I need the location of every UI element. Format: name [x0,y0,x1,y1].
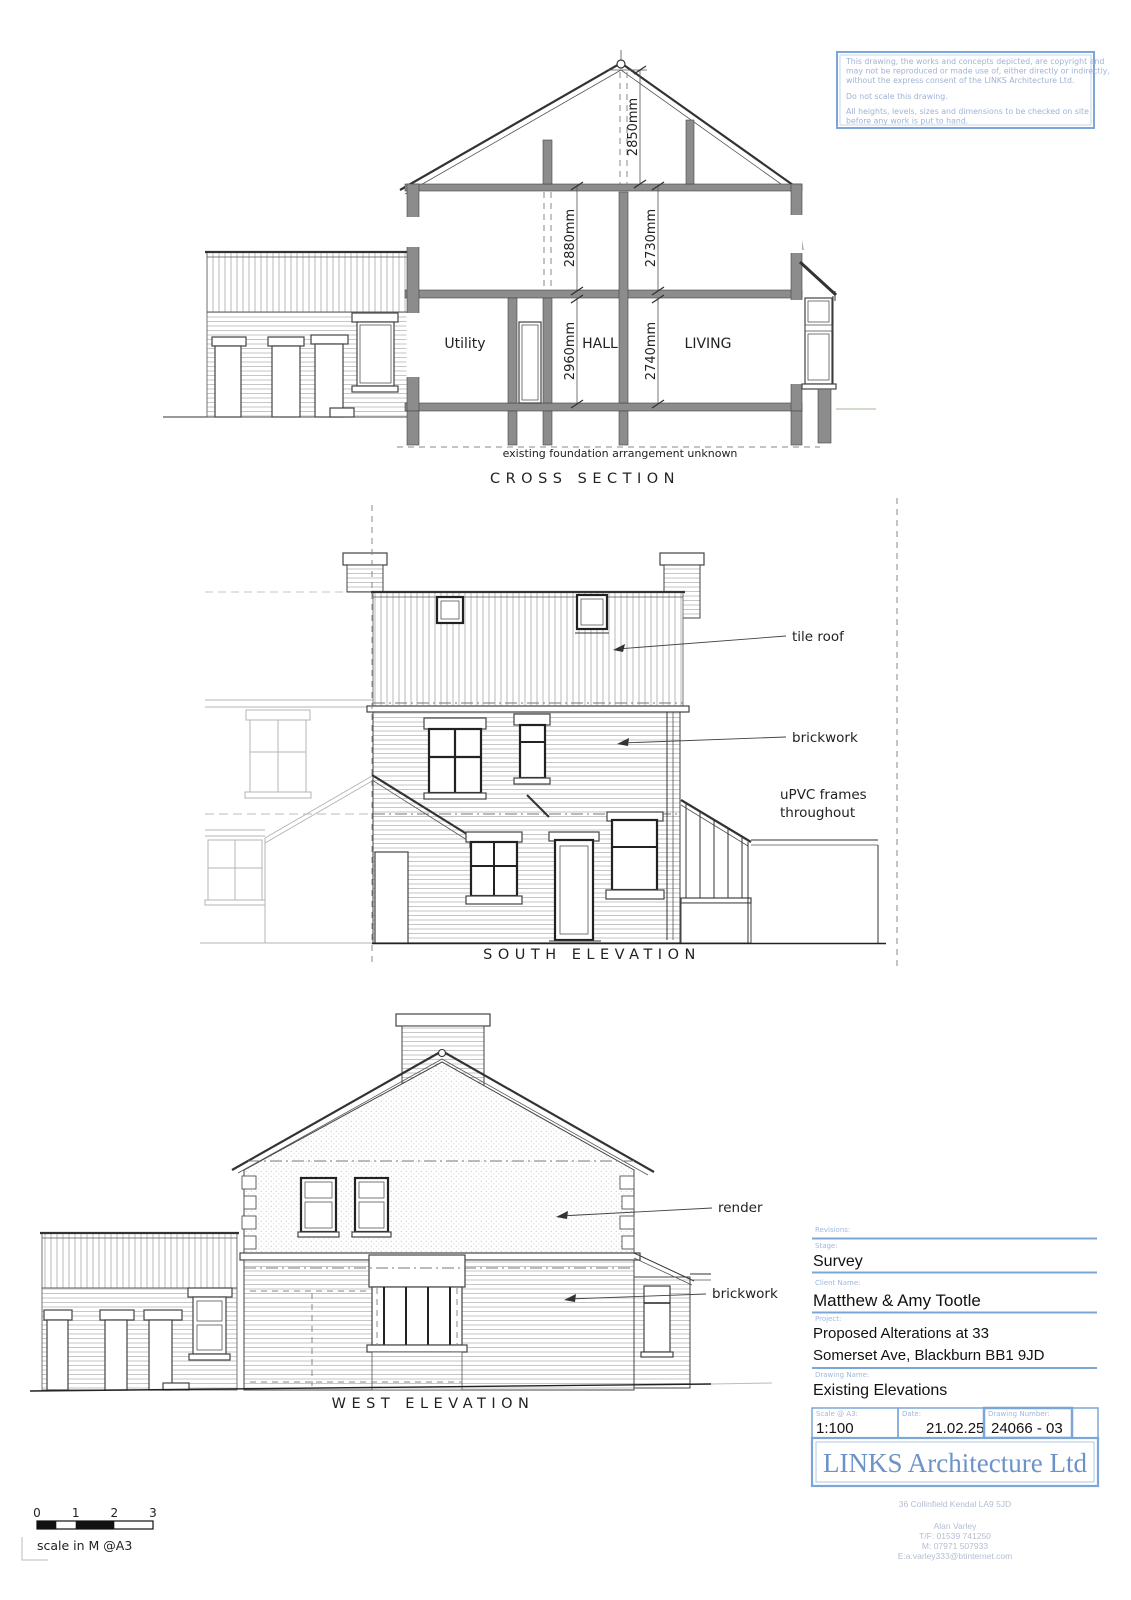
west-window-upper-right [352,1178,391,1237]
scale-tick: 2 [110,1506,118,1520]
drawing-number-value: 24066 - 03 [991,1420,1063,1437]
project-line2: Somerset Ave, Blackburn BB1 9JD [813,1347,1045,1364]
company-logo-box: LINKS Architecture Ltd [812,1438,1098,1486]
foundation-note: existing foundation arrangement unknown [503,447,738,460]
upvc-label-line1: uPVC frames [780,787,867,803]
dim-first-left: 2880mm [563,209,578,267]
tile-roof-label: tile roof [792,629,845,645]
neighbour-house [200,592,372,943]
conservatory [681,800,751,943]
drawing-sheet: 2850mm 2880mm 2730mm 2960mm 2740mm Utili… [0,0,1131,1600]
company-address: 36 Collinfield Kendal LA9 5JD [899,1499,1011,1509]
window-first-floor-left [424,718,486,799]
copyright-line: All heights, levels, sizes and dimension… [846,107,1089,116]
date-label: Date: [902,1410,921,1418]
room-label-utility: Utility [444,336,485,352]
upvc-label-line2: throughout [780,805,855,821]
west-left-extension [40,1233,239,1390]
dim-first-right: 2730mm [644,209,659,267]
dim-ground-left: 2960mm [563,322,578,380]
chimney [343,553,387,565]
empty-box [1072,1408,1098,1438]
west-bay-window [367,1255,467,1390]
contact-mobile: M: 07971 507933 [922,1541,988,1551]
drawing-name-value: Existing Elevations [813,1382,947,1399]
dim-ridge: 2850mm [626,98,641,156]
copyright-line: Do not scale this drawing. [846,92,948,101]
bay-window-section [800,262,876,443]
copyright-line: before any work is put to hand. [846,117,968,126]
back-door [375,852,408,943]
project-label: Project: [815,1315,841,1323]
south-elevation-drawing: tile roof brickwork uPVC frames througho… [200,498,897,968]
render-label: render [718,1200,763,1216]
scale-tick: 0 [33,1506,41,1520]
window-first-floor-narrow [514,714,550,784]
project-line1: Proposed Alterations at 33 [813,1325,989,1342]
copyright-line: This drawing, the works and concepts dep… [845,57,1104,66]
client-label: Client Name: [815,1279,861,1287]
west-elevation-title: WEST ELEVATION [332,1396,535,1412]
stage-value: Survey [813,1253,863,1270]
dim-ground-right: 2740mm [644,322,659,380]
copyright-line: without the express consent of the LINKS… [846,76,1074,85]
room-label-hall: HALL [582,336,618,352]
scale-value: 1:100 [816,1420,854,1437]
brickwork-label-south: brickwork [792,730,858,746]
scale-tick: 3 [149,1506,157,1520]
south-elevation-title: SOUTH ELEVATION [483,947,701,963]
scale-label: Scale @ A3: [816,1410,858,1418]
west-elevation-drawing: render brickwork WEST ELEVATION [30,1014,778,1412]
scale-caption: scale in M @A3 [37,1538,132,1553]
copyright-line: may not be reproduced or made use of, ei… [846,67,1110,76]
client-value: Matthew & Amy Tootle [813,1291,981,1310]
ridge-apex [617,60,625,68]
date-value: 21.02.25 [926,1420,984,1437]
cross-section-title: CROSS SECTION [490,471,680,487]
contact-phone: T/F: 01539 741250 [919,1531,991,1541]
scale-bar: 0 1 2 3 scale in M @A3 [22,1506,157,1560]
back-door-centre [549,832,601,941]
cross-section-outbuilding [163,252,414,417]
window-ground-right [606,812,664,899]
brickwork-label-west: brickwork [712,1286,778,1302]
room-label-living: LIVING [685,336,732,352]
flat-roof-store [751,840,878,943]
contact-email: E:a.varley333@btinternet.com [898,1551,1012,1561]
stage-label: Stage: [815,1242,838,1250]
tile-roof-surface [373,592,683,710]
company-contact: 36 Collinfield Kendal LA9 5JD Alan Varle… [898,1499,1012,1561]
title-block: Revisions: Stage: Survey Client Name: Ma… [812,1226,1098,1561]
revisions-label: Revisions: [815,1226,850,1234]
cross-section-drawing: 2850mm 2880mm 2730mm 2960mm 2740mm Utili… [163,50,876,487]
drawing-number-label: Drawing Number: [988,1410,1050,1418]
drawing-name-label: Drawing Name: [815,1371,869,1379]
chimney [660,553,704,565]
window-ground-left [466,832,522,904]
scale-tick: 1 [72,1506,80,1520]
west-window-upper-left [298,1178,339,1237]
copyright-note: This drawing, the works and concepts dep… [837,52,1110,128]
west-right-wing [634,1253,711,1388]
south-house [343,553,886,944]
title-block-info-boxes: Scale @ A3: 1:100 Date: 21.02.25 Drawing… [812,1408,1098,1438]
company-name: LINKS Architecture Ltd [823,1448,1087,1478]
contact-name: Alan Varley [934,1521,978,1531]
rooflight [577,595,607,629]
